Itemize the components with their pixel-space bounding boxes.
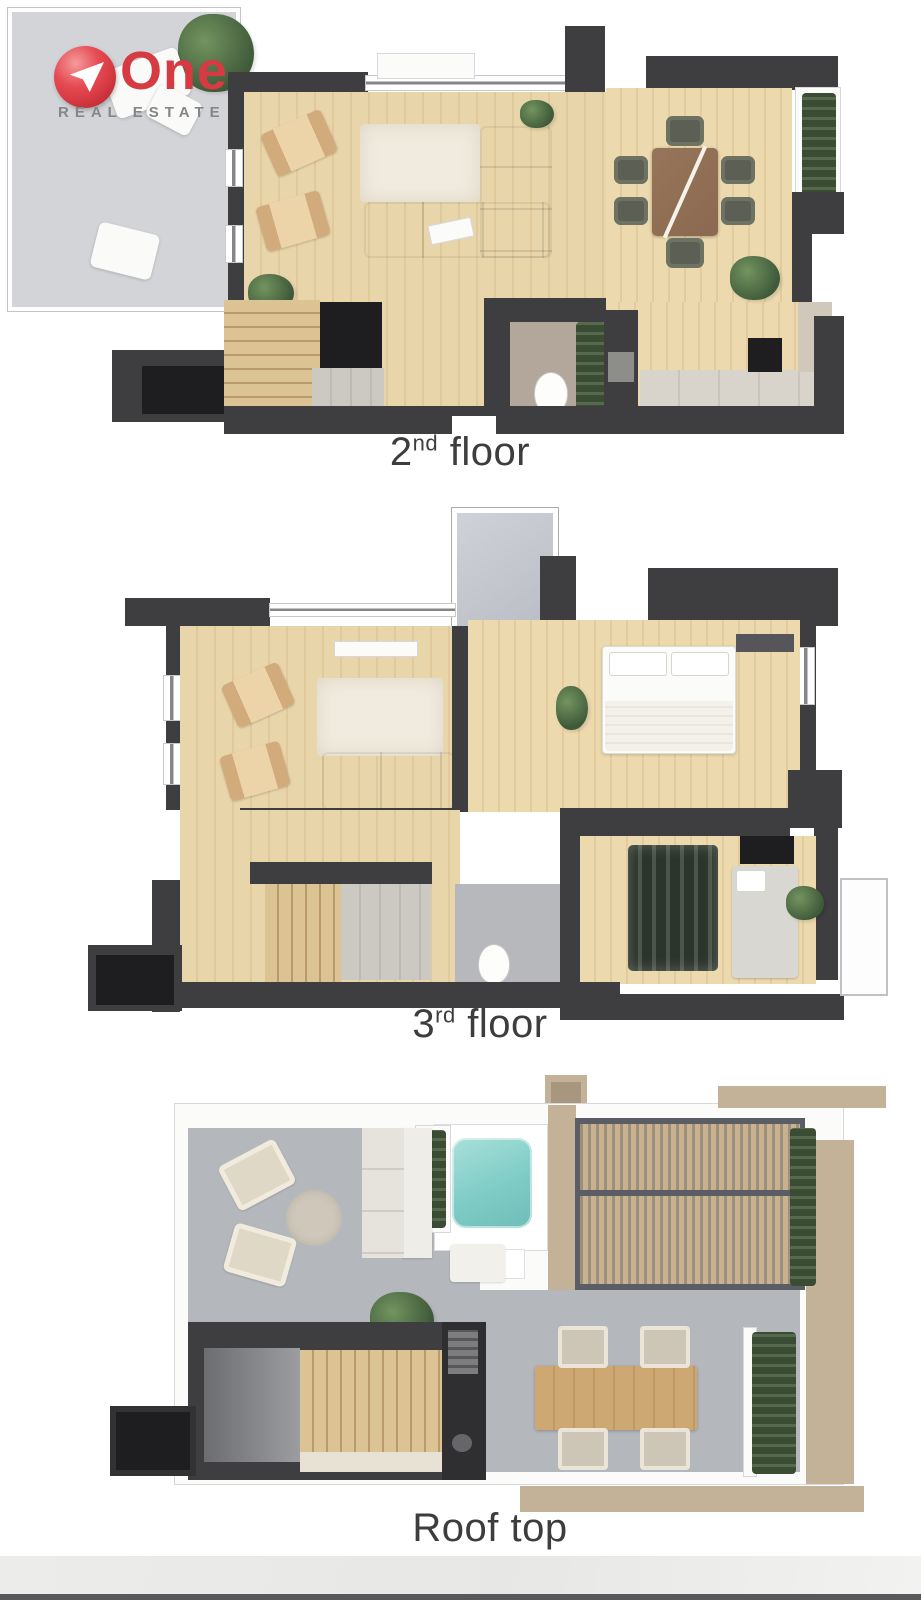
pergola-beam bbox=[575, 1284, 805, 1290]
outdoor-sofa-back bbox=[402, 1128, 432, 1258]
pergola-beam bbox=[575, 1118, 580, 1290]
roof-dining-chair bbox=[640, 1428, 690, 1470]
roof-dining-chair bbox=[640, 1326, 690, 1368]
footer-band bbox=[0, 1556, 921, 1594]
hedge-icon bbox=[752, 1332, 796, 1474]
stair-step bbox=[300, 1452, 442, 1472]
sun-lounger bbox=[450, 1244, 505, 1282]
pergola bbox=[575, 1118, 805, 1290]
pergola-vine-icon bbox=[790, 1128, 816, 1286]
roof-dining-chair bbox=[558, 1428, 608, 1470]
outdoor-kitchen bbox=[442, 1322, 486, 1480]
stair-landing bbox=[204, 1348, 300, 1462]
roof-trim bbox=[718, 1086, 886, 1108]
roof-top-plan: Roof top bbox=[0, 0, 921, 1600]
round-rug bbox=[286, 1190, 342, 1246]
sink bbox=[452, 1434, 472, 1452]
chimney-cap bbox=[551, 1082, 581, 1104]
floor-label-roof: Roof top bbox=[290, 1506, 690, 1551]
outdoor-sofa bbox=[362, 1128, 404, 1258]
pergola-beam bbox=[575, 1118, 805, 1124]
label-base: Roof top bbox=[412, 1506, 567, 1550]
storage-box bbox=[110, 1406, 196, 1476]
staircase bbox=[300, 1350, 442, 1454]
roof-wall bbox=[548, 1105, 576, 1290]
footer-line bbox=[0, 1594, 921, 1600]
roof-dining-table bbox=[535, 1366, 697, 1430]
plunge-pool bbox=[452, 1138, 532, 1228]
roof-dining-chair bbox=[558, 1326, 608, 1368]
pergola-beam bbox=[575, 1190, 805, 1196]
grill bbox=[448, 1330, 478, 1374]
